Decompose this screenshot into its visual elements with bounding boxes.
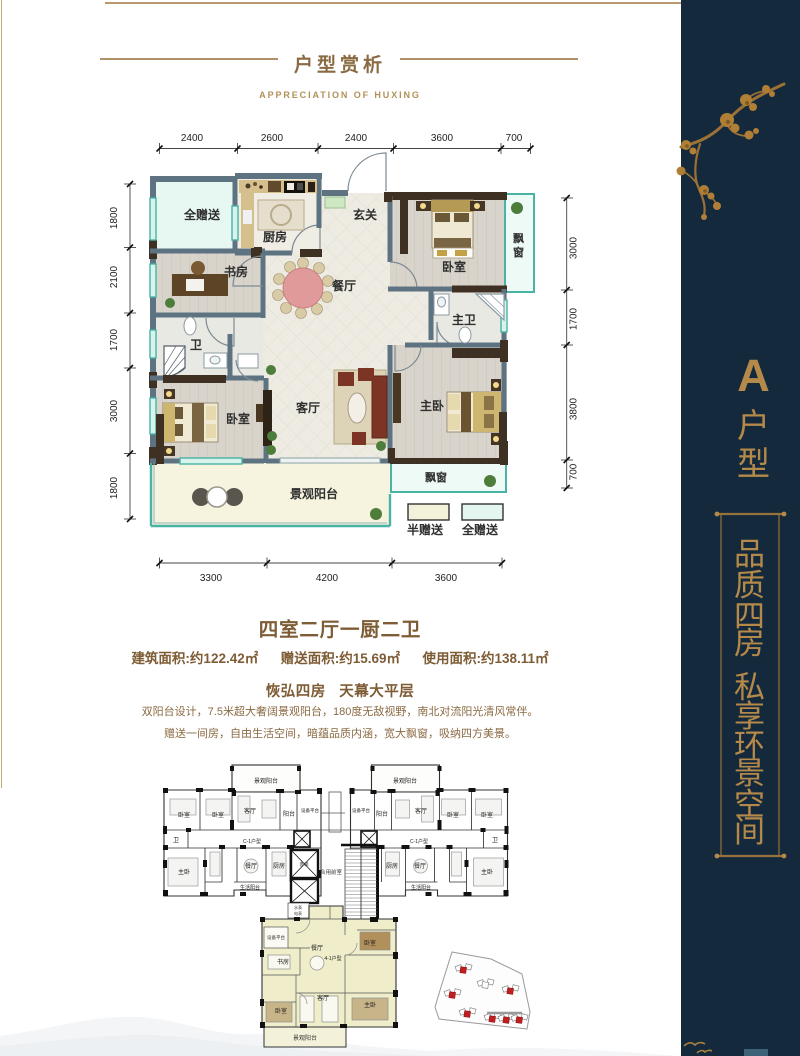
svg-text:书房: 书房 xyxy=(277,958,289,966)
svg-text:餐厅: 餐厅 xyxy=(311,944,323,952)
svg-text:客厅: 客厅 xyxy=(317,994,329,1002)
svg-text:2400: 2400 xyxy=(345,133,368,144)
svg-text:3600: 3600 xyxy=(435,573,458,584)
svg-text:阳台: 阳台 xyxy=(283,810,295,818)
svg-text:餐厅: 餐厅 xyxy=(332,278,356,293)
svg-text:4200: 4200 xyxy=(316,573,339,584)
svg-text:卧室: 卧室 xyxy=(442,259,466,274)
svg-text:卧室: 卧室 xyxy=(178,811,190,819)
svg-text:主卧: 主卧 xyxy=(364,1001,376,1009)
svg-text:卧室: 卧室 xyxy=(226,411,250,426)
svg-text:3600: 3600 xyxy=(431,133,454,144)
svg-text:窗: 窗 xyxy=(513,245,524,259)
svg-text:C-1户型: C-1户型 xyxy=(410,838,428,845)
svg-text:1800: 1800 xyxy=(109,206,120,229)
svg-text:卫: 卫 xyxy=(190,338,202,352)
svg-text:卧室: 卧室 xyxy=(275,1007,287,1015)
svg-text:卧室: 卧室 xyxy=(447,811,459,819)
svg-text:阳台: 阳台 xyxy=(376,810,388,818)
svg-text:全赠送: 全赠送 xyxy=(183,207,221,222)
svg-text:水表: 水表 xyxy=(294,904,302,910)
svg-text:厨房: 厨房 xyxy=(386,862,398,870)
svg-text:卧室: 卧室 xyxy=(364,939,376,947)
svg-text:电表: 电表 xyxy=(294,910,302,916)
svg-text:合用前室: 合用前室 xyxy=(320,868,343,876)
svg-text:玄关: 玄关 xyxy=(353,207,377,222)
svg-text:2600: 2600 xyxy=(261,133,284,144)
svg-text:2400: 2400 xyxy=(181,133,204,144)
svg-text:3800: 3800 xyxy=(569,397,580,420)
svg-text:餐厅: 餐厅 xyxy=(245,862,257,870)
svg-text:设备平台: 设备平台 xyxy=(267,934,285,941)
svg-text:厨房: 厨房 xyxy=(273,862,285,870)
svg-text:卫: 卫 xyxy=(173,837,179,844)
svg-text:客厅: 客厅 xyxy=(244,807,256,815)
svg-text:半赠送: 半赠送 xyxy=(407,522,444,537)
svg-text:3000: 3000 xyxy=(569,236,580,259)
svg-text:1700: 1700 xyxy=(569,307,580,330)
svg-text:1700: 1700 xyxy=(109,328,120,351)
svg-text:主卧: 主卧 xyxy=(178,868,190,876)
svg-text:700: 700 xyxy=(569,463,580,480)
svg-text:2100: 2100 xyxy=(109,265,120,288)
svg-text:卫: 卫 xyxy=(492,837,498,844)
svg-text:3300: 3300 xyxy=(200,573,223,584)
svg-text:1800: 1800 xyxy=(109,476,120,499)
svg-text:飘: 飘 xyxy=(513,232,524,245)
svg-text:设备平台: 设备平台 xyxy=(301,807,319,814)
svg-text:客厅: 客厅 xyxy=(295,400,320,415)
svg-text:设备平台: 设备平台 xyxy=(352,807,370,814)
svg-text:700: 700 xyxy=(506,133,523,144)
svg-text:景观阳台: 景观阳台 xyxy=(393,777,417,785)
svg-text:飘窗: 飘窗 xyxy=(425,470,447,484)
svg-text:客厅: 客厅 xyxy=(415,807,427,815)
svg-text:4-1户型: 4-1户型 xyxy=(324,955,341,962)
svg-text:厨房: 厨房 xyxy=(263,229,287,244)
svg-text:卧室: 卧室 xyxy=(212,811,224,819)
svg-text:主卧: 主卧 xyxy=(481,868,493,876)
svg-text:景观阳台: 景观阳台 xyxy=(254,777,278,785)
svg-text:餐厅: 餐厅 xyxy=(414,862,426,870)
svg-text:生活阳台: 生活阳台 xyxy=(411,884,431,891)
svg-text:全赠送: 全赠送 xyxy=(461,522,499,537)
svg-text:书房: 书房 xyxy=(224,264,248,279)
svg-text:卧室: 卧室 xyxy=(481,811,493,819)
svg-text:景观阳台: 景观阳台 xyxy=(290,486,338,501)
svg-text:生活阳台: 生活阳台 xyxy=(240,884,260,891)
svg-text:C-1户型: C-1户型 xyxy=(243,838,261,845)
svg-text:景观阳台: 景观阳台 xyxy=(293,1034,317,1042)
svg-text:主卧: 主卧 xyxy=(420,398,444,413)
svg-text:3000: 3000 xyxy=(109,399,120,422)
svg-text:客梯: 客梯 xyxy=(300,861,309,868)
svg-text:主卫: 主卫 xyxy=(452,312,476,327)
